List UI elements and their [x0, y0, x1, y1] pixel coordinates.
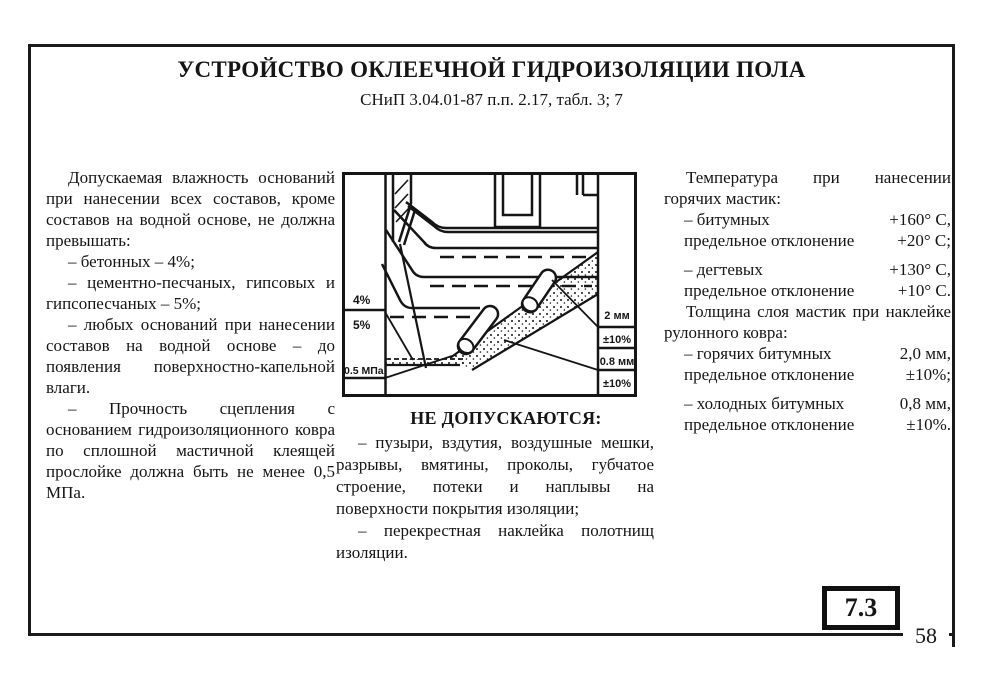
thickness-row: предельное отклонение ±10%. [664, 414, 951, 435]
temp-row: предельное отклонение +20° С; [664, 230, 951, 251]
row-label: предельное отклонение [684, 280, 854, 301]
paragraph: – Прочность сцепления с основанием гидро… [46, 398, 335, 503]
waterproofing-diagram: 4% 5% 0.5 МПа 2 мм ±10% 0.8 мм ±10% [342, 172, 637, 397]
right-column: Температура при нанесении горячих мастик… [664, 167, 951, 435]
thickness-row: предельное отклонение ±10%; [664, 364, 951, 385]
temperature-heading: Температура при нанесении горячих мастик… [664, 167, 951, 209]
row-value: ±10%. [906, 414, 951, 435]
row-value: +160° С, [889, 209, 951, 230]
label-tolerance-1: ±10% [603, 334, 631, 346]
page-title: УСТРОЙСТВО ОКЛЕЕЧНОЙ ГИДРОИЗОЛЯЦИИ ПОЛА [28, 57, 955, 83]
temp-row: предельное отклонение +10° С. [664, 280, 951, 301]
row-label: – битумных [684, 209, 770, 230]
row-label: предельное отклонение [684, 414, 854, 435]
temp-row: – битумных +160° С, [664, 209, 951, 230]
thickness-row: – горячих битумных 2,0 мм, [664, 343, 951, 364]
thickness-heading: Толщина слоя мастик при наклейке рулонно… [664, 301, 951, 343]
not-allowed-section: НЕ ДОПУСКАЮТСЯ: – пузыри, вздутия, возду… [336, 407, 654, 564]
not-allowed-heading: НЕ ДОПУСКАЮТСЯ: [336, 407, 654, 429]
row-value: +20° С; [897, 230, 951, 251]
row-value: +10° С. [898, 280, 951, 301]
label-adhesion: 0.5 МПа [344, 365, 384, 377]
temp-row: – дегтевых +130° С, [664, 259, 951, 280]
paragraph: – цементно-песчаных, гипсовых и гипсопес… [46, 272, 335, 314]
paragraph: – любых оснований при нанесении составов… [46, 314, 335, 398]
label-tolerance-2: ±10% [603, 378, 631, 390]
thickness-row: – холодных битумных 0,8 мм, [664, 393, 951, 414]
paragraph: – бетонных – 4%; [46, 251, 335, 272]
page-subtitle: СНиП 3.04.01-87 п.п. 2.17, табл. 3; 7 [28, 90, 955, 110]
row-value: 2,0 мм, [900, 343, 951, 364]
label-slope-4: 4% [353, 293, 371, 307]
not-allowed-item: – перекрестная наклейка полотнищ изоляци… [336, 520, 654, 564]
label-thickness-2mm: 2 мм [604, 310, 629, 322]
label-thickness-08mm: 0.8 мм [600, 356, 635, 368]
page-number: 58 [903, 619, 949, 655]
label-slope-5: 5% [353, 318, 371, 332]
row-label: – холодных битумных [684, 393, 844, 414]
paragraph: Допускаемая влажность оснований при нане… [46, 167, 335, 251]
section-number-box: 7.3 [822, 586, 900, 630]
row-label: – горячих битумных [684, 343, 832, 364]
not-allowed-item: – пузыри, вздутия, воздушные мешки, разр… [336, 432, 654, 520]
row-label: предельное отклонение [684, 364, 854, 385]
row-value: 0,8 мм, [900, 393, 951, 414]
row-value: ±10%; [906, 364, 951, 385]
row-label: – дегтевых [684, 259, 763, 280]
row-value: +130° С, [889, 259, 951, 280]
row-label: предельное отклонение [684, 230, 854, 251]
page-frame-right-extension [952, 634, 955, 647]
left-column: Допускаемая влажность оснований при нане… [46, 167, 335, 503]
